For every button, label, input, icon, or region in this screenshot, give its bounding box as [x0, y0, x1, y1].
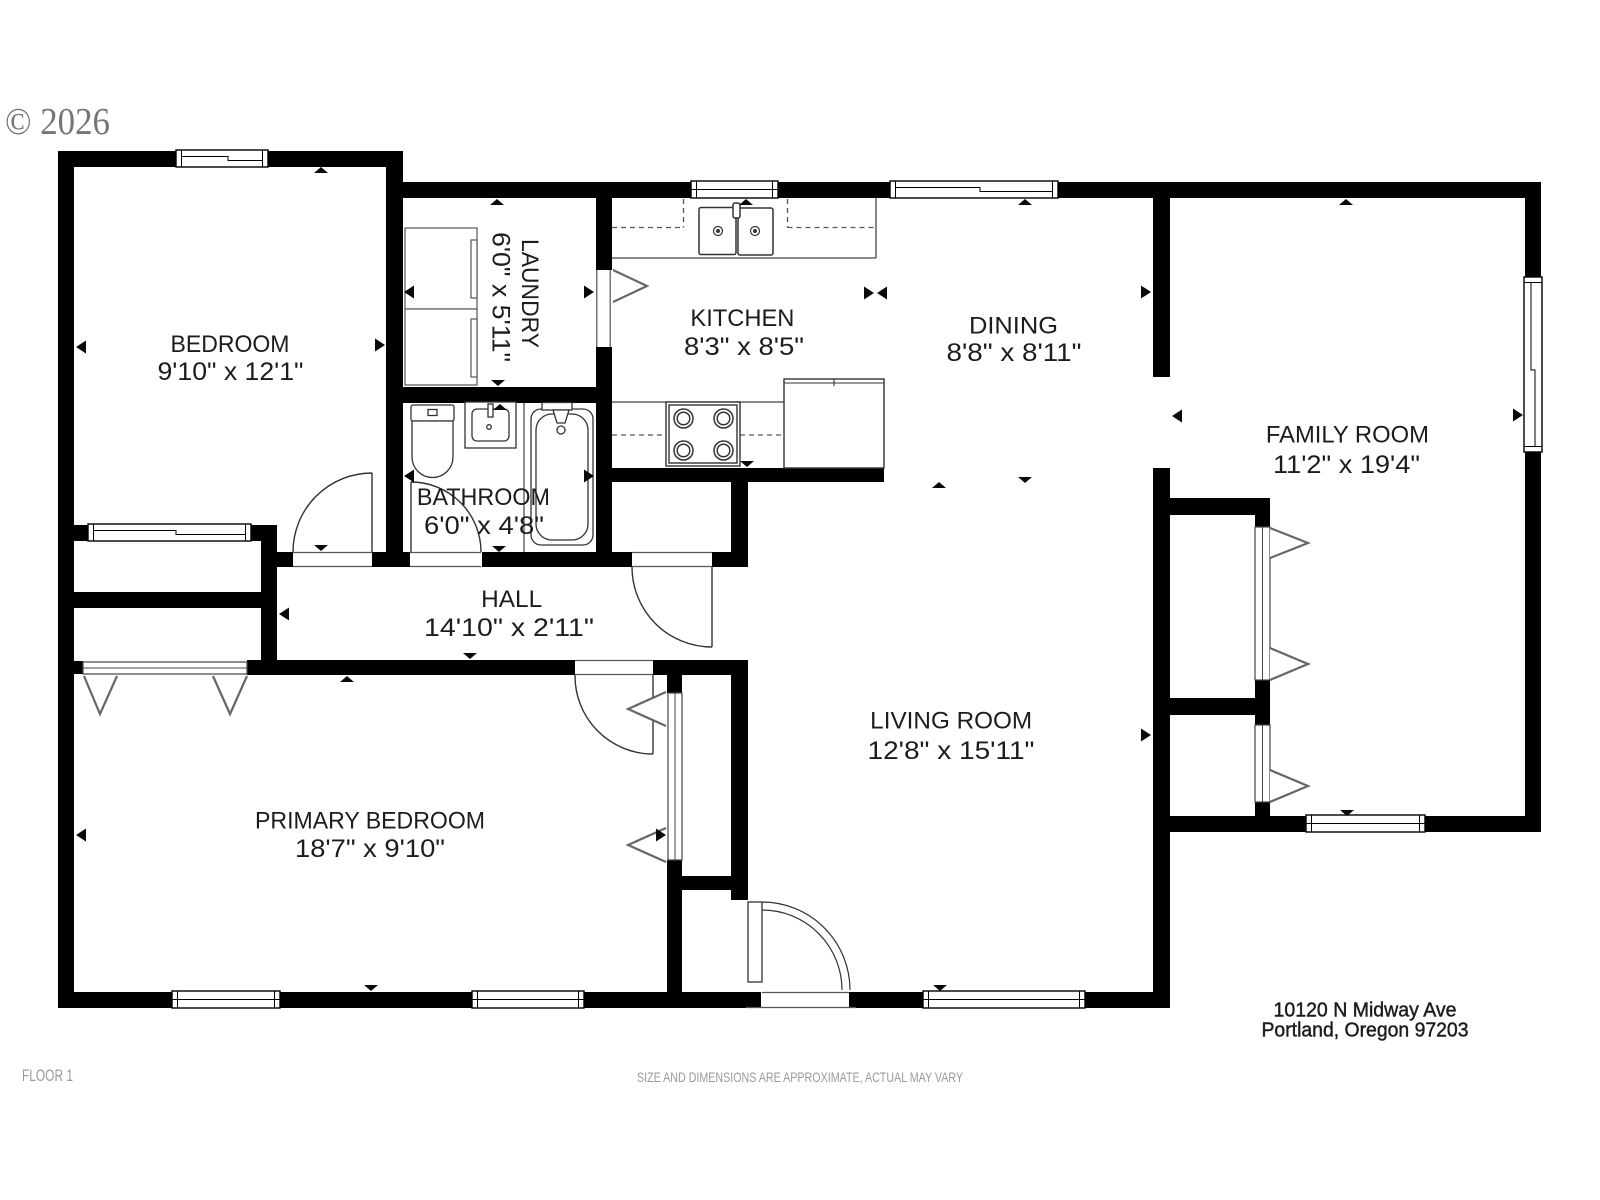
svg-text:FAMILY ROOM: FAMILY ROOM: [1266, 422, 1429, 449]
svg-text:14'10" x 2'11": 14'10" x 2'11": [424, 614, 594, 642]
svg-text:Portland, Oregon 97203: Portland, Oregon 97203: [1262, 1019, 1469, 1042]
svg-text:HALL: HALL: [481, 586, 542, 613]
svg-text:LAUNDRY: LAUNDRY: [516, 239, 543, 348]
svg-text:SIZE AND DIMENSIONS ARE APPROX: SIZE AND DIMENSIONS ARE APPROXIMATE, ACT…: [637, 1069, 963, 1085]
svg-text:9'10" x 12'1": 9'10" x 12'1": [158, 358, 304, 386]
svg-text:11'2" x 19'4": 11'2" x 19'4": [1273, 451, 1420, 479]
svg-text:6'0" x 4'8": 6'0" x 4'8": [424, 512, 544, 540]
svg-text:18'7" x 9'10": 18'7" x 9'10": [295, 835, 445, 863]
svg-text:12'8" x 15'11": 12'8" x 15'11": [868, 737, 1035, 765]
svg-text:KITCHEN: KITCHEN: [690, 305, 794, 332]
svg-text:DINING: DINING: [969, 313, 1058, 340]
svg-text:FLOOR 1: FLOOR 1: [22, 1066, 73, 1085]
svg-text:8'8" x 8'11": 8'8" x 8'11": [947, 339, 1082, 367]
svg-text:PRIMARY BEDROOM: PRIMARY BEDROOM: [255, 808, 485, 835]
svg-text:BEDROOM: BEDROOM: [171, 331, 290, 358]
svg-text:LIVING ROOM: LIVING ROOM: [870, 708, 1032, 735]
svg-text:BATHROOM: BATHROOM: [417, 484, 550, 511]
svg-text:8'3" x 8'5": 8'3" x 8'5": [684, 333, 804, 361]
svg-text:© 2026: © 2026: [5, 101, 110, 143]
svg-text:6'0" x 5'11": 6'0" x 5'11": [487, 232, 515, 362]
